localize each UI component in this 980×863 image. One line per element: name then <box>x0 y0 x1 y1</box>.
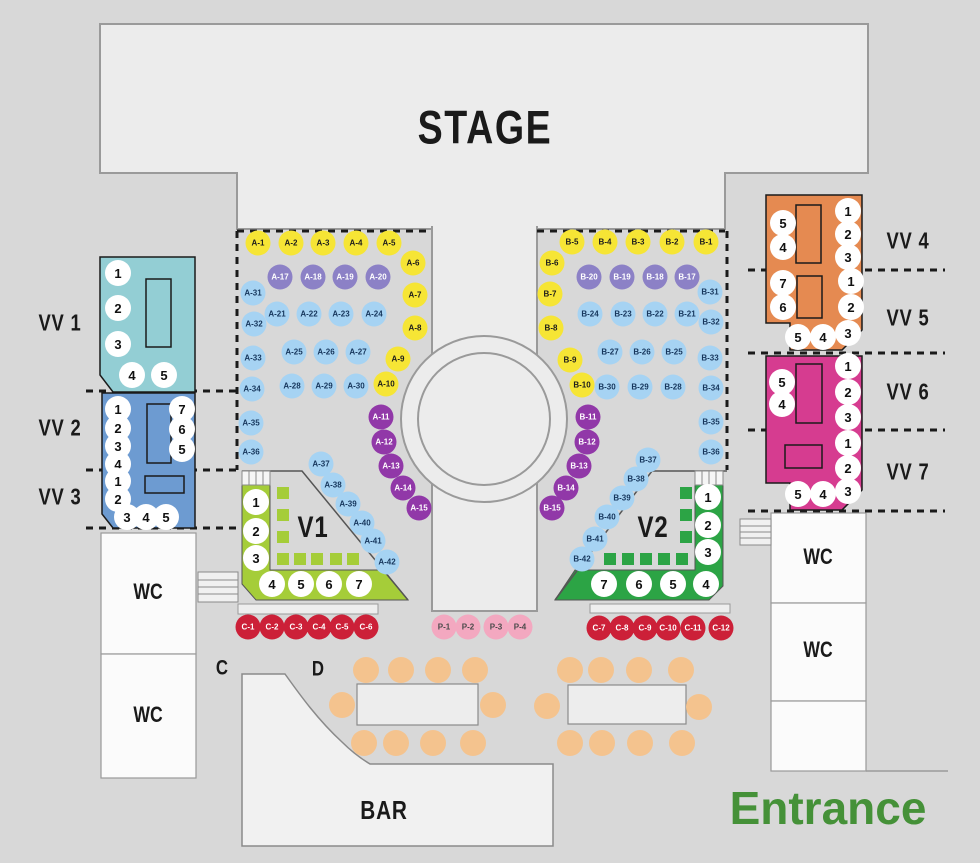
seat-A-21[interactable]: A-21 <box>265 302 290 327</box>
seat-vv5-3[interactable]: 3 <box>835 320 861 346</box>
seat-A-32[interactable]: A-32 <box>242 312 267 337</box>
seat-B-26[interactable]: B-26 <box>630 340 655 365</box>
seat-B-24[interactable]: B-24 <box>578 302 603 327</box>
seat-A-15[interactable]: A-15 <box>407 496 432 521</box>
seat-C-2[interactable]: C-2 <box>260 615 285 640</box>
seat-v1-1[interactable]: 1 <box>243 489 269 515</box>
stairs-right <box>740 519 771 545</box>
stool <box>480 692 506 718</box>
seat-vv7-1[interactable]: 1 <box>835 430 861 456</box>
seat-A-27[interactable]: A-27 <box>346 340 371 365</box>
v1-entry-steps <box>242 471 270 485</box>
seat-B-21[interactable]: B-21 <box>675 302 700 327</box>
seat-B-18[interactable]: B-18 <box>643 265 668 290</box>
seat-B-27[interactable]: B-27 <box>598 340 623 365</box>
section-label-v1: V1 <box>298 513 329 543</box>
seat-v1-6[interactable]: 6 <box>316 571 342 597</box>
seat-vv1-1[interactable]: 1 <box>105 260 131 286</box>
seat-C-3[interactable]: C-3 <box>284 615 309 640</box>
seat-A-2[interactable]: A-2 <box>279 231 304 256</box>
stairs-left <box>198 572 238 602</box>
seat-A-6[interactable]: A-6 <box>401 251 426 276</box>
seat-vv1-3[interactable]: 3 <box>105 331 131 357</box>
stool <box>557 730 583 756</box>
seat-B-13[interactable]: B-13 <box>567 454 592 479</box>
seat-C-7[interactable]: C-7 <box>587 616 612 641</box>
seat-v2-6[interactable]: 6 <box>626 571 652 597</box>
seat-B-11[interactable]: B-11 <box>576 405 601 430</box>
seat-B-6[interactable]: B-6 <box>540 251 565 276</box>
section-label-vv5: VV 5 <box>886 307 929 330</box>
seat-B-31[interactable]: B-31 <box>698 280 723 305</box>
seat-vv6-3[interactable]: 3 <box>835 404 861 430</box>
seat-P-1[interactable]: P-1 <box>432 615 457 640</box>
seat-B-8[interactable]: B-8 <box>539 316 564 341</box>
stool <box>589 730 615 756</box>
stool <box>588 657 614 683</box>
seat-B-17[interactable]: B-17 <box>675 265 700 290</box>
section-label-vv4: VV 4 <box>886 230 929 253</box>
stool <box>383 730 409 756</box>
seat-vv4-4[interactable]: 4 <box>770 234 796 260</box>
entrance-label: Entrance <box>730 785 927 831</box>
seat-v1-2[interactable]: 2 <box>243 518 269 544</box>
seat-v2-1[interactable]: 1 <box>695 484 721 510</box>
section-label-vv1: VV 1 <box>38 312 81 335</box>
seat-v2-5[interactable]: 5 <box>660 571 686 597</box>
seat-A-31[interactable]: A-31 <box>241 281 266 306</box>
seat-B-5[interactable]: B-5 <box>560 230 585 255</box>
seat-B-29[interactable]: B-29 <box>628 375 653 400</box>
seat-A-34[interactable]: A-34 <box>240 377 265 402</box>
seat-vv5-4[interactable]: 4 <box>810 324 836 350</box>
seat-A-5[interactable]: A-5 <box>377 231 402 256</box>
seat-C-11[interactable]: C-11 <box>681 616 706 641</box>
seat-P-4[interactable]: P-4 <box>508 615 533 640</box>
seat-A-20[interactable]: A-20 <box>366 265 391 290</box>
stool <box>353 657 379 683</box>
seat-A-10[interactable]: A-10 <box>374 372 399 397</box>
stool <box>420 730 446 756</box>
stool <box>534 693 560 719</box>
seat-B-9[interactable]: B-9 <box>558 348 583 373</box>
table-d-right <box>568 685 686 724</box>
section-label-vv3: VV 3 <box>38 486 81 509</box>
seat-B-22[interactable]: B-22 <box>643 302 668 327</box>
seat-B-40[interactable]: B-40 <box>595 505 620 530</box>
seat-C-5[interactable]: C-5 <box>330 615 355 640</box>
stool <box>329 692 355 718</box>
seat-v1-5[interactable]: 5 <box>288 571 314 597</box>
seat-B-36[interactable]: B-36 <box>699 440 724 465</box>
seat-C-6[interactable]: C-6 <box>354 615 379 640</box>
seat-v2-7[interactable]: 7 <box>591 571 617 597</box>
section-label-vv2: VV 2 <box>38 417 81 440</box>
dance-floor-outer-circle <box>401 336 567 502</box>
seat-vv5-6[interactable]: 6 <box>770 294 796 320</box>
seat-B-15[interactable]: B-15 <box>540 496 565 521</box>
seat-vv4-3[interactable]: 3 <box>835 244 861 270</box>
stool <box>460 730 486 756</box>
seat-A-9[interactable]: A-9 <box>386 347 411 372</box>
seat-A-42[interactable]: A-42 <box>375 550 400 575</box>
seat-v2-4[interactable]: 4 <box>693 571 719 597</box>
counter-left <box>238 604 378 614</box>
seat-vv1-4[interactable]: 4 <box>119 362 145 388</box>
seat-B-42[interactable]: B-42 <box>570 547 595 572</box>
stool <box>351 730 377 756</box>
stool <box>557 657 583 683</box>
stool <box>388 657 414 683</box>
seat-A-26[interactable]: A-26 <box>314 340 339 365</box>
seat-B-12[interactable]: B-12 <box>575 430 600 455</box>
seat-B-3[interactable]: B-3 <box>626 230 651 255</box>
seat-A-24[interactable]: A-24 <box>362 302 387 327</box>
seat-v1-7[interactable]: 7 <box>346 571 372 597</box>
seat-A-11[interactable]: A-11 <box>369 405 394 430</box>
seat-P-2[interactable]: P-2 <box>456 615 481 640</box>
wc-label-right-1: WC <box>803 546 832 568</box>
seat-C-8[interactable]: C-8 <box>610 616 635 641</box>
seat-vv5-2[interactable]: 2 <box>838 294 864 320</box>
seat-vv5-5[interactable]: 5 <box>785 324 811 350</box>
stool <box>627 730 653 756</box>
wc-label-left-2: WC <box>133 704 162 726</box>
section-label-vv7: VV 7 <box>886 461 929 484</box>
seat-A-35[interactable]: A-35 <box>239 411 264 436</box>
seat-P-3[interactable]: P-3 <box>484 615 509 640</box>
seat-vv5-1[interactable]: 1 <box>838 268 864 294</box>
seat-A-33[interactable]: A-33 <box>241 346 266 371</box>
seat-vv6-1[interactable]: 1 <box>835 353 861 379</box>
seat-B-33[interactable]: B-33 <box>698 346 723 371</box>
seat-A-22[interactable]: A-22 <box>297 302 322 327</box>
seat-v1-3[interactable]: 3 <box>243 545 269 571</box>
seat-B-7[interactable]: B-7 <box>538 282 563 307</box>
seat-v2-3[interactable]: 3 <box>695 539 721 565</box>
venue-floorplan: STAGE VV 1 VV 2 VV 3 VV 4 VV 5 VV 6 VV 7… <box>0 0 980 863</box>
seat-A-28[interactable]: A-28 <box>280 374 305 399</box>
seat-v1-4[interactable]: 4 <box>259 571 285 597</box>
seat-vv4-5[interactable]: 5 <box>770 210 796 236</box>
stool <box>669 730 695 756</box>
stool <box>462 657 488 683</box>
seat-A-19[interactable]: A-19 <box>333 265 358 290</box>
seat-B-23[interactable]: B-23 <box>611 302 636 327</box>
seat-vv2-5[interactable]: 5 <box>169 436 195 462</box>
seat-B-20[interactable]: B-20 <box>577 265 602 290</box>
seat-vv1-2[interactable]: 2 <box>105 295 131 321</box>
section-label-v2: V2 <box>638 513 669 543</box>
seat-B-4[interactable]: B-4 <box>593 230 618 255</box>
stool <box>668 657 694 683</box>
seat-A-25[interactable]: A-25 <box>282 340 307 365</box>
wc-label-left-1: WC <box>133 581 162 603</box>
seat-C-10[interactable]: C-10 <box>656 616 681 641</box>
seat-A-4[interactable]: A-4 <box>344 231 369 256</box>
seat-A-23[interactable]: A-23 <box>329 302 354 327</box>
stage-label: STAGE <box>418 104 553 151</box>
seat-vv7-3[interactable]: 3 <box>835 478 861 504</box>
stool <box>686 694 712 720</box>
seat-A-17[interactable]: A-17 <box>268 265 293 290</box>
seat-B-32[interactable]: B-32 <box>699 310 724 335</box>
seat-vv7-5[interactable]: 5 <box>785 481 811 507</box>
seat-B-10[interactable]: B-10 <box>570 373 595 398</box>
stool <box>626 657 652 683</box>
wc-label-right-2: WC <box>803 639 832 661</box>
seat-B-28[interactable]: B-28 <box>661 375 686 400</box>
seat-vv1-5[interactable]: 5 <box>151 362 177 388</box>
seat-A-7[interactable]: A-7 <box>403 283 428 308</box>
seat-C-1[interactable]: C-1 <box>236 615 261 640</box>
seat-B-25[interactable]: B-25 <box>662 340 687 365</box>
table-d-left <box>357 684 478 725</box>
seat-vv6-4[interactable]: 4 <box>769 391 795 417</box>
seat-A-36[interactable]: A-36 <box>239 440 264 465</box>
seat-A-29[interactable]: A-29 <box>312 374 337 399</box>
row-c-label: C <box>216 658 228 679</box>
bar-label: BAR <box>360 797 407 823</box>
seat-v2-2[interactable]: 2 <box>695 512 721 538</box>
stool <box>425 657 451 683</box>
seat-C-4[interactable]: C-4 <box>307 615 332 640</box>
seat-A-30[interactable]: A-30 <box>344 374 369 399</box>
seat-vv3-5[interactable]: 5 <box>153 504 179 530</box>
seat-B-19[interactable]: B-19 <box>610 265 635 290</box>
seat-B-2[interactable]: B-2 <box>660 230 685 255</box>
seat-A-3[interactable]: A-3 <box>311 231 336 256</box>
seat-A-12[interactable]: A-12 <box>372 430 397 455</box>
seat-vv7-4[interactable]: 4 <box>810 481 836 507</box>
seat-C-9[interactable]: C-9 <box>633 616 658 641</box>
seat-vv5-7[interactable]: 7 <box>770 270 796 296</box>
seat-B-30[interactable]: B-30 <box>595 375 620 400</box>
seat-A-18[interactable]: A-18 <box>301 265 326 290</box>
seat-B-1[interactable]: B-1 <box>694 230 719 255</box>
seat-A-8[interactable]: A-8 <box>403 316 428 341</box>
section-label-vv6: VV 6 <box>886 381 929 404</box>
row-d-label: D <box>312 659 324 680</box>
seat-vv6-2[interactable]: 2 <box>835 379 861 405</box>
counter-right <box>590 604 730 613</box>
seat-B-35[interactable]: B-35 <box>699 410 724 435</box>
seat-B-34[interactable]: B-34 <box>699 376 724 401</box>
seat-A-1[interactable]: A-1 <box>246 231 271 256</box>
seat-C-12[interactable]: C-12 <box>709 616 734 641</box>
v2-entry-steps <box>695 471 723 485</box>
